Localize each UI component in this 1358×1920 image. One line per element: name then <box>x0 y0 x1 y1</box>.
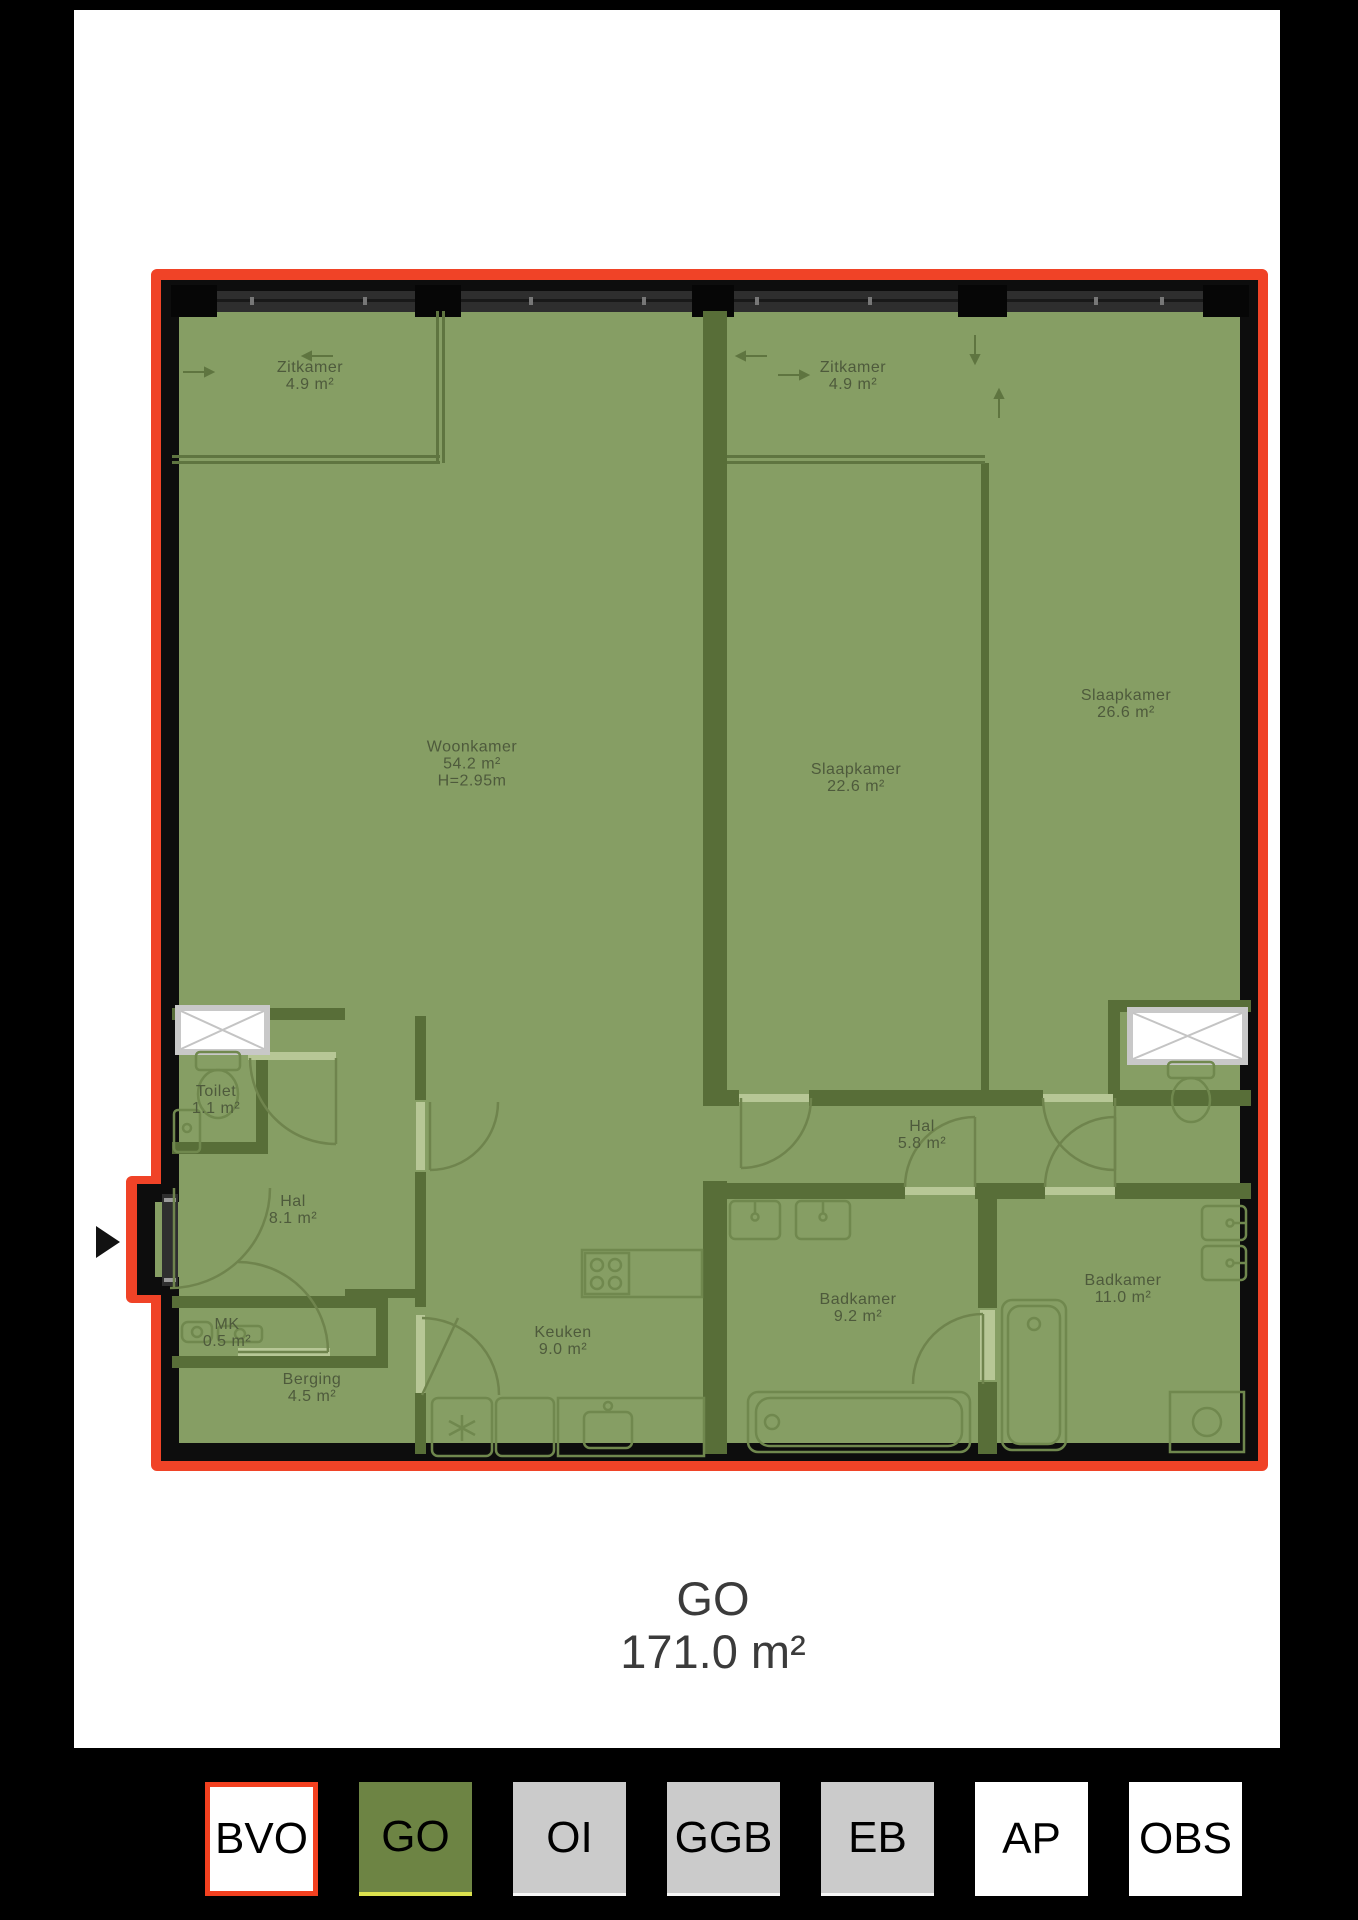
room-label-mk: MK0.5 m² <box>203 1316 251 1350</box>
legend-button-oi[interactable]: OI <box>513 1782 626 1896</box>
caption-label: GO <box>620 1572 805 1625</box>
room-label-berging: Berging4.5 m² <box>283 1371 342 1405</box>
legend-button-go[interactable]: GO <box>359 1782 472 1896</box>
room-label-zitkamer-right: Zitkamer4.9 m² <box>820 359 886 393</box>
caption-area: 171.0 m² <box>620 1625 805 1678</box>
ventilation-shaft-icon <box>178 1008 267 1052</box>
room-label-hal-1: Hal8.1 m² <box>269 1193 317 1227</box>
ventilation-shaft-icon <box>1130 1010 1245 1062</box>
room-label-slaapkamer-2: Slaapkamer26.6 m² <box>1081 687 1171 721</box>
room-label-keuken: Keuken9.0 m² <box>534 1324 591 1358</box>
legend-button-eb[interactable]: EB <box>821 1782 934 1896</box>
room-label-toilet: Toilet1.1 m² <box>192 1083 240 1117</box>
page-background: { "plan": { "caption": { "label": "GO", … <box>0 0 1358 1920</box>
legend-button-ggb[interactable]: GGB <box>667 1782 780 1896</box>
room-label-slaapkamer-1: Slaapkamer22.6 m² <box>811 761 901 795</box>
legend-button-bvo[interactable]: BVO <box>205 1782 318 1896</box>
room-label-badkamer-2: Badkamer11.0 m² <box>1085 1272 1162 1306</box>
room-label-hal-2: Hal5.8 m² <box>898 1118 946 1152</box>
entrance-door <box>162 1194 178 1286</box>
room-label-zitkamer-left: Zitkamer4.9 m² <box>277 359 343 393</box>
room-label-woonkamer: Woonkamer54.2 m²H=2.95m <box>427 739 517 790</box>
legend-button-ap[interactable]: AP <box>975 1782 1088 1896</box>
legend-button-obs[interactable]: OBS <box>1129 1782 1242 1896</box>
legend-bar: BVO GO OI GGB EB AP OBS <box>205 1782 1242 1896</box>
entrance-arrow-icon <box>96 1226 120 1258</box>
room-label-badkamer-1: Badkamer9.2 m² <box>820 1291 897 1325</box>
area-caption: GO 171.0 m² <box>620 1572 805 1678</box>
